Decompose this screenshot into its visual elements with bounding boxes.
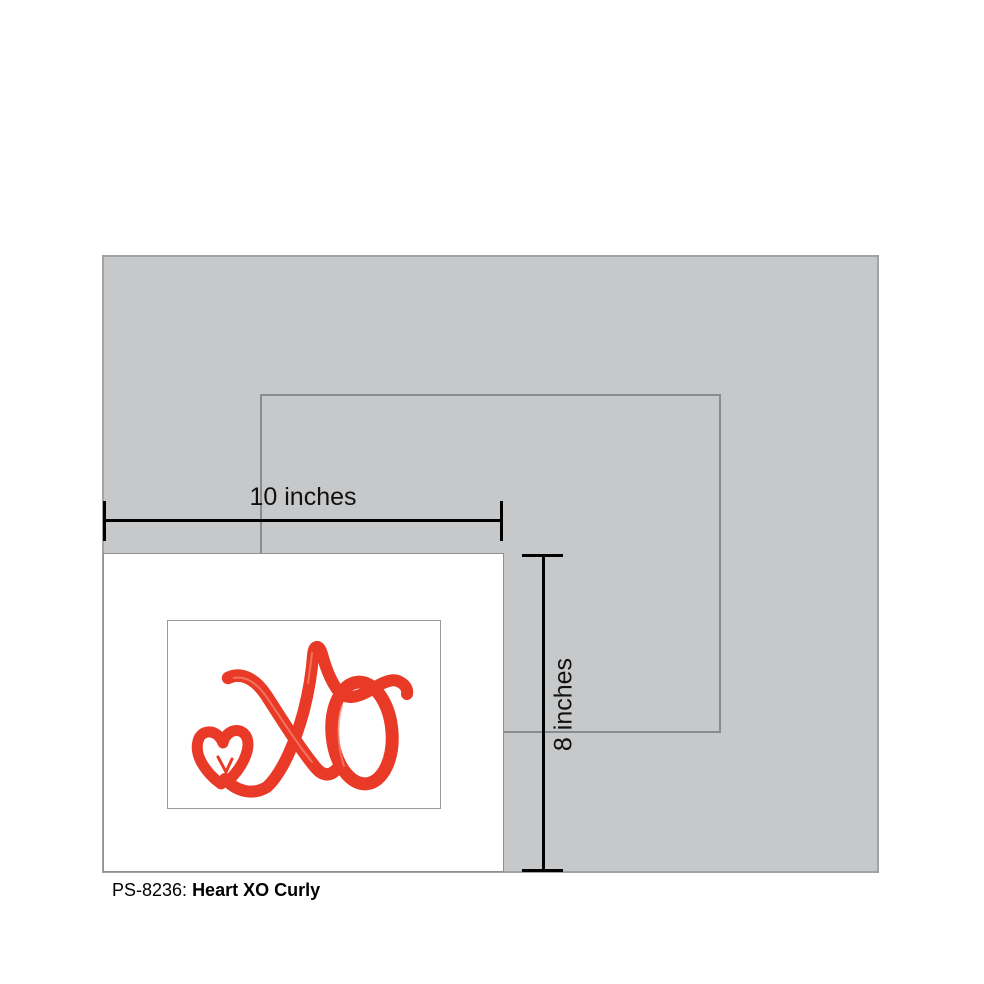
- art-mat: [167, 620, 441, 809]
- height-measure-tick-top: [522, 554, 563, 557]
- product-size-diagram: 10 inches 8 inches PS-8236:Heart XO Curl…: [0, 0, 984, 984]
- heart-inner-line: [218, 757, 232, 772]
- width-measure-label: 10 inches: [103, 484, 503, 510]
- height-measure-label: 8 inches: [551, 630, 578, 780]
- height-measure-tick-bottom: [522, 869, 563, 872]
- height-measure-line: [542, 554, 545, 872]
- heart-xo-artwork: [168, 621, 440, 808]
- product-title: Heart XO Curly: [192, 880, 320, 900]
- product-sku: PS-8236:: [112, 880, 187, 900]
- width-measure-line: [103, 519, 503, 522]
- product-caption: PS-8236:Heart XO Curly: [112, 880, 320, 901]
